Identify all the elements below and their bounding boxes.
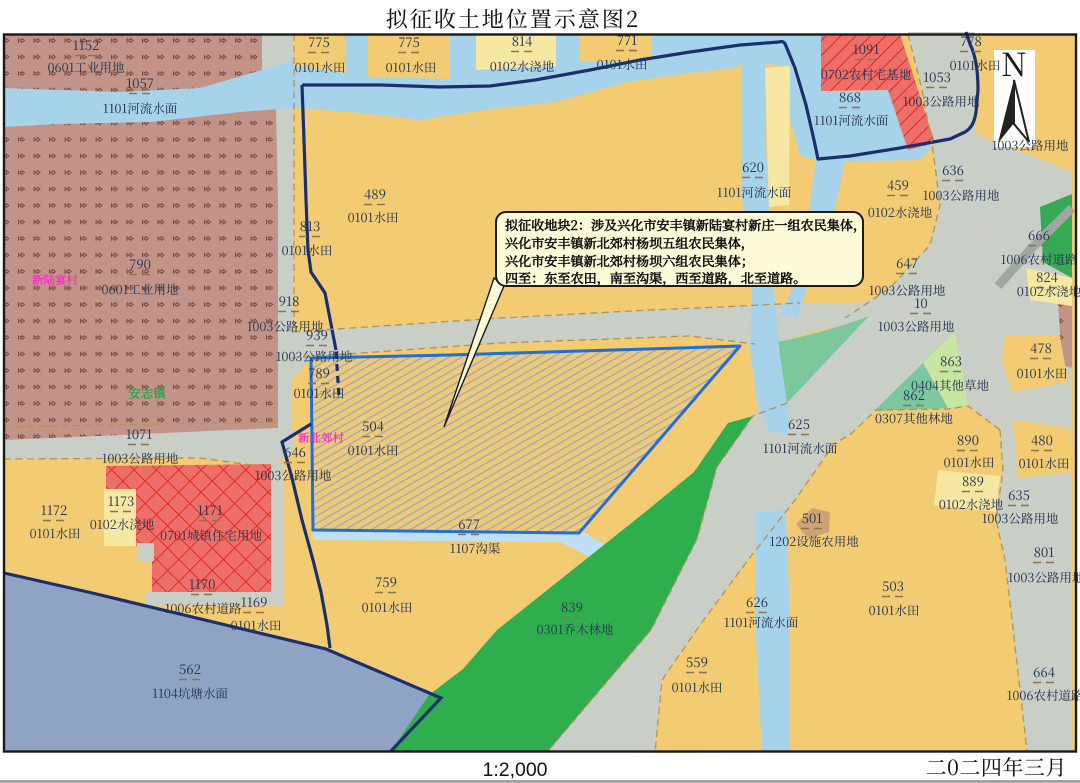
- svg-text:1:2,000: 1:2,000: [482, 759, 547, 781]
